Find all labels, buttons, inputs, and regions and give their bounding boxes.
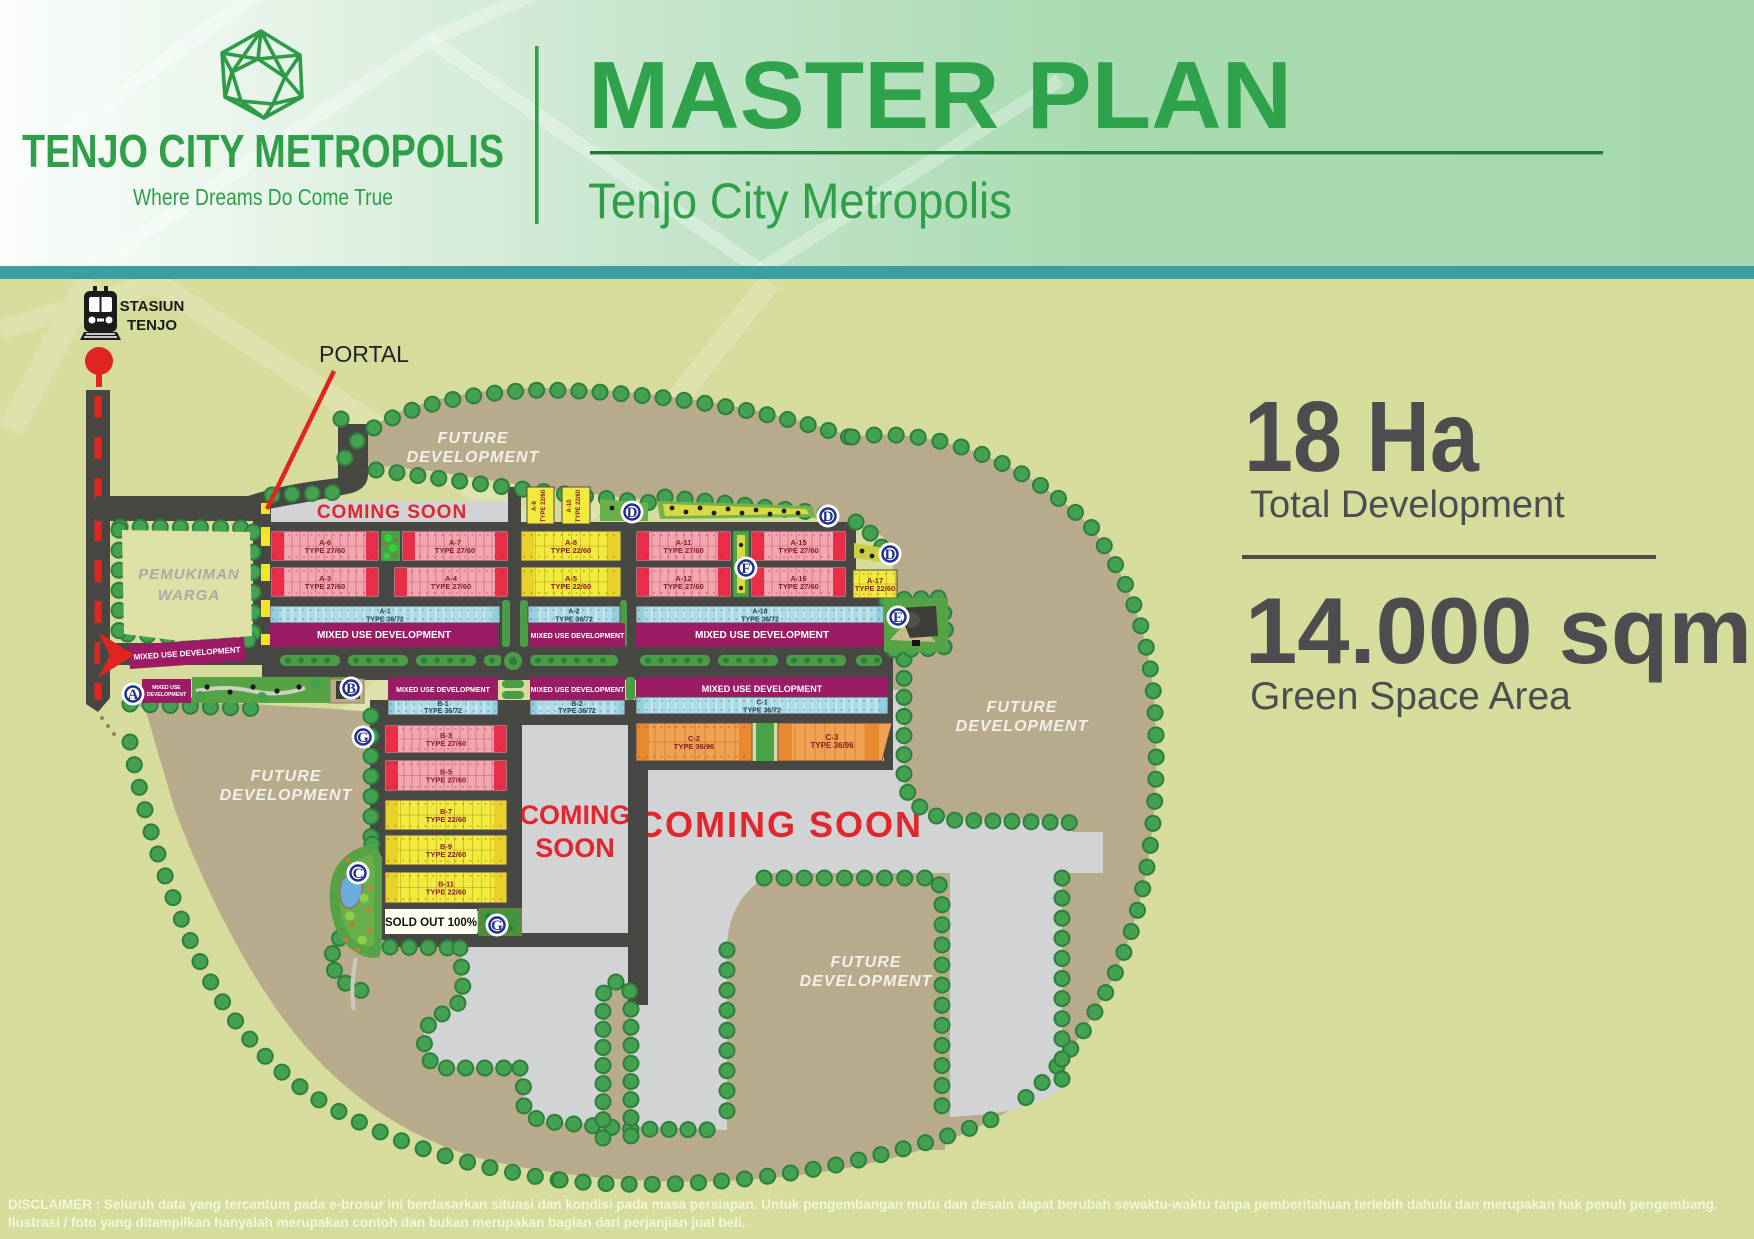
- svg-text:TYPE 27/60: TYPE 27/60: [305, 582, 345, 591]
- svg-text:TYPE 22/60: TYPE 22/60: [855, 584, 895, 593]
- svg-text:Tenjo City Metropolis: Tenjo City Metropolis: [588, 173, 1012, 229]
- svg-text:FUTURE: FUTURE: [438, 430, 509, 447]
- svg-text:A-1: A-1: [379, 609, 390, 616]
- svg-text:TYPE 22/60: TYPE 22/60: [551, 546, 591, 555]
- svg-text:MIXED USE DEVELOPMENT: MIXED USE DEVELOPMENT: [531, 633, 625, 640]
- svg-text:DEVELOPMENT: DEVELOPMENT: [220, 787, 353, 804]
- svg-text:PORTAL: PORTAL: [319, 341, 409, 367]
- svg-text:MIXED USE DEVELOPMENT: MIXED USE DEVELOPMENT: [531, 687, 625, 694]
- svg-text:STASIUN: STASIUN: [120, 298, 185, 315]
- svg-text:F: F: [741, 561, 750, 577]
- svg-text:TENJO CITY METROPOLIS: TENJO CITY METROPOLIS: [22, 125, 504, 177]
- svg-text:TYPE 27/60: TYPE 27/60: [778, 546, 818, 555]
- svg-text:TYPE 27/60: TYPE 27/60: [663, 582, 703, 591]
- svg-text:TYPE 36/72: TYPE 36/72: [558, 708, 596, 715]
- svg-text:TYPE 36/96: TYPE 36/96: [810, 741, 854, 750]
- svg-text:TYPE 36/72: TYPE 36/72: [743, 708, 781, 715]
- svg-text:TYPE 22/60: TYPE 22/60: [551, 582, 591, 591]
- svg-text:MIXED USE DEVELOPMENT: MIXED USE DEVELOPMENT: [396, 687, 490, 694]
- svg-text:COMING SOON: COMING SOON: [637, 804, 923, 845]
- svg-text:A: A: [128, 687, 139, 703]
- svg-text:MASTER PLAN: MASTER PLAN: [588, 42, 1292, 149]
- svg-text:C-1: C-1: [756, 700, 767, 707]
- svg-text:Where Dreams Do Come True: Where Dreams Do Come True: [133, 184, 393, 210]
- svg-text:WARGA: WARGA: [158, 587, 221, 604]
- svg-text:DEVELOPMENT: DEVELOPMENT: [956, 718, 1089, 735]
- svg-text:TYPE 22/60: TYPE 22/60: [576, 489, 582, 522]
- svg-text:B-1: B-1: [437, 701, 448, 708]
- svg-text:PEMUKIMAN: PEMUKIMAN: [138, 566, 240, 583]
- svg-text:TYPE 22/60: TYPE 22/60: [426, 888, 466, 897]
- svg-text:A-2: A-2: [568, 609, 579, 616]
- svg-text:COMING SOON: COMING SOON: [317, 502, 467, 523]
- svg-text:D: D: [823, 509, 834, 525]
- svg-text:TYPE 36/72: TYPE 36/72: [366, 617, 404, 624]
- svg-text:DEVELOPMENT: DEVELOPMENT: [800, 973, 933, 990]
- svg-text:TYPE 27/60: TYPE 27/60: [426, 739, 466, 748]
- svg-text:TYPE 27/60: TYPE 27/60: [426, 776, 466, 785]
- svg-text:B-2: B-2: [571, 701, 582, 708]
- svg-text:TYPE 36/72: TYPE 36/72: [741, 617, 779, 624]
- svg-text:A-18: A-18: [752, 609, 767, 616]
- svg-text:TYPE 27/60: TYPE 27/60: [435, 546, 475, 555]
- svg-text:C: C: [353, 866, 364, 882]
- svg-text:D: D: [627, 505, 638, 521]
- svg-text:TYPE 22/60: TYPE 22/60: [426, 815, 466, 824]
- svg-text:MIXED USE: MIXED USE: [152, 685, 181, 691]
- svg-text:A-9: A-9: [532, 501, 538, 511]
- svg-text:COMING: COMING: [520, 800, 631, 830]
- svg-text:TYPE 27/60: TYPE 27/60: [663, 546, 703, 555]
- svg-text:FUTURE: FUTURE: [251, 768, 322, 785]
- svg-text:TENJO: TENJO: [127, 317, 177, 334]
- svg-text:MIXED USE DEVELOPMENT: MIXED USE DEVELOPMENT: [702, 684, 823, 694]
- svg-text:SOON: SOON: [535, 833, 615, 863]
- svg-text:FUTURE: FUTURE: [831, 954, 902, 971]
- svg-text:G: G: [491, 918, 503, 934]
- svg-text:SOLD OUT 100%: SOLD OUT 100%: [385, 917, 477, 929]
- svg-text:TYPE 36/72: TYPE 36/72: [424, 708, 462, 715]
- svg-text:TYPE 22/60: TYPE 22/60: [426, 850, 466, 859]
- svg-text:DEVELOPMENT: DEVELOPMENT: [147, 692, 187, 698]
- svg-text:FUTURE: FUTURE: [987, 699, 1058, 716]
- svg-text:MIXED USE DEVELOPMENT: MIXED USE DEVELOPMENT: [695, 630, 829, 641]
- svg-text:B: B: [346, 681, 356, 697]
- svg-text:DEVELOPMENT: DEVELOPMENT: [407, 449, 540, 466]
- svg-text:G: G: [357, 730, 369, 746]
- svg-text:TYPE 27/60: TYPE 27/60: [305, 546, 345, 555]
- svg-text:MIXED USE DEVELOPMENT: MIXED USE DEVELOPMENT: [317, 630, 451, 641]
- svg-text:TYPE 22/60: TYPE 22/60: [541, 489, 547, 522]
- svg-text:D: D: [885, 547, 896, 563]
- svg-text:A-10: A-10: [567, 499, 573, 513]
- svg-text:TYPE 27/60: TYPE 27/60: [778, 582, 818, 591]
- svg-text:TYPE 36/72: TYPE 36/72: [555, 617, 593, 624]
- svg-text:E: E: [893, 610, 903, 626]
- svg-text:TYPE 27/60: TYPE 27/60: [431, 582, 471, 591]
- svg-text:TYPE 36/96: TYPE 36/96: [674, 742, 714, 751]
